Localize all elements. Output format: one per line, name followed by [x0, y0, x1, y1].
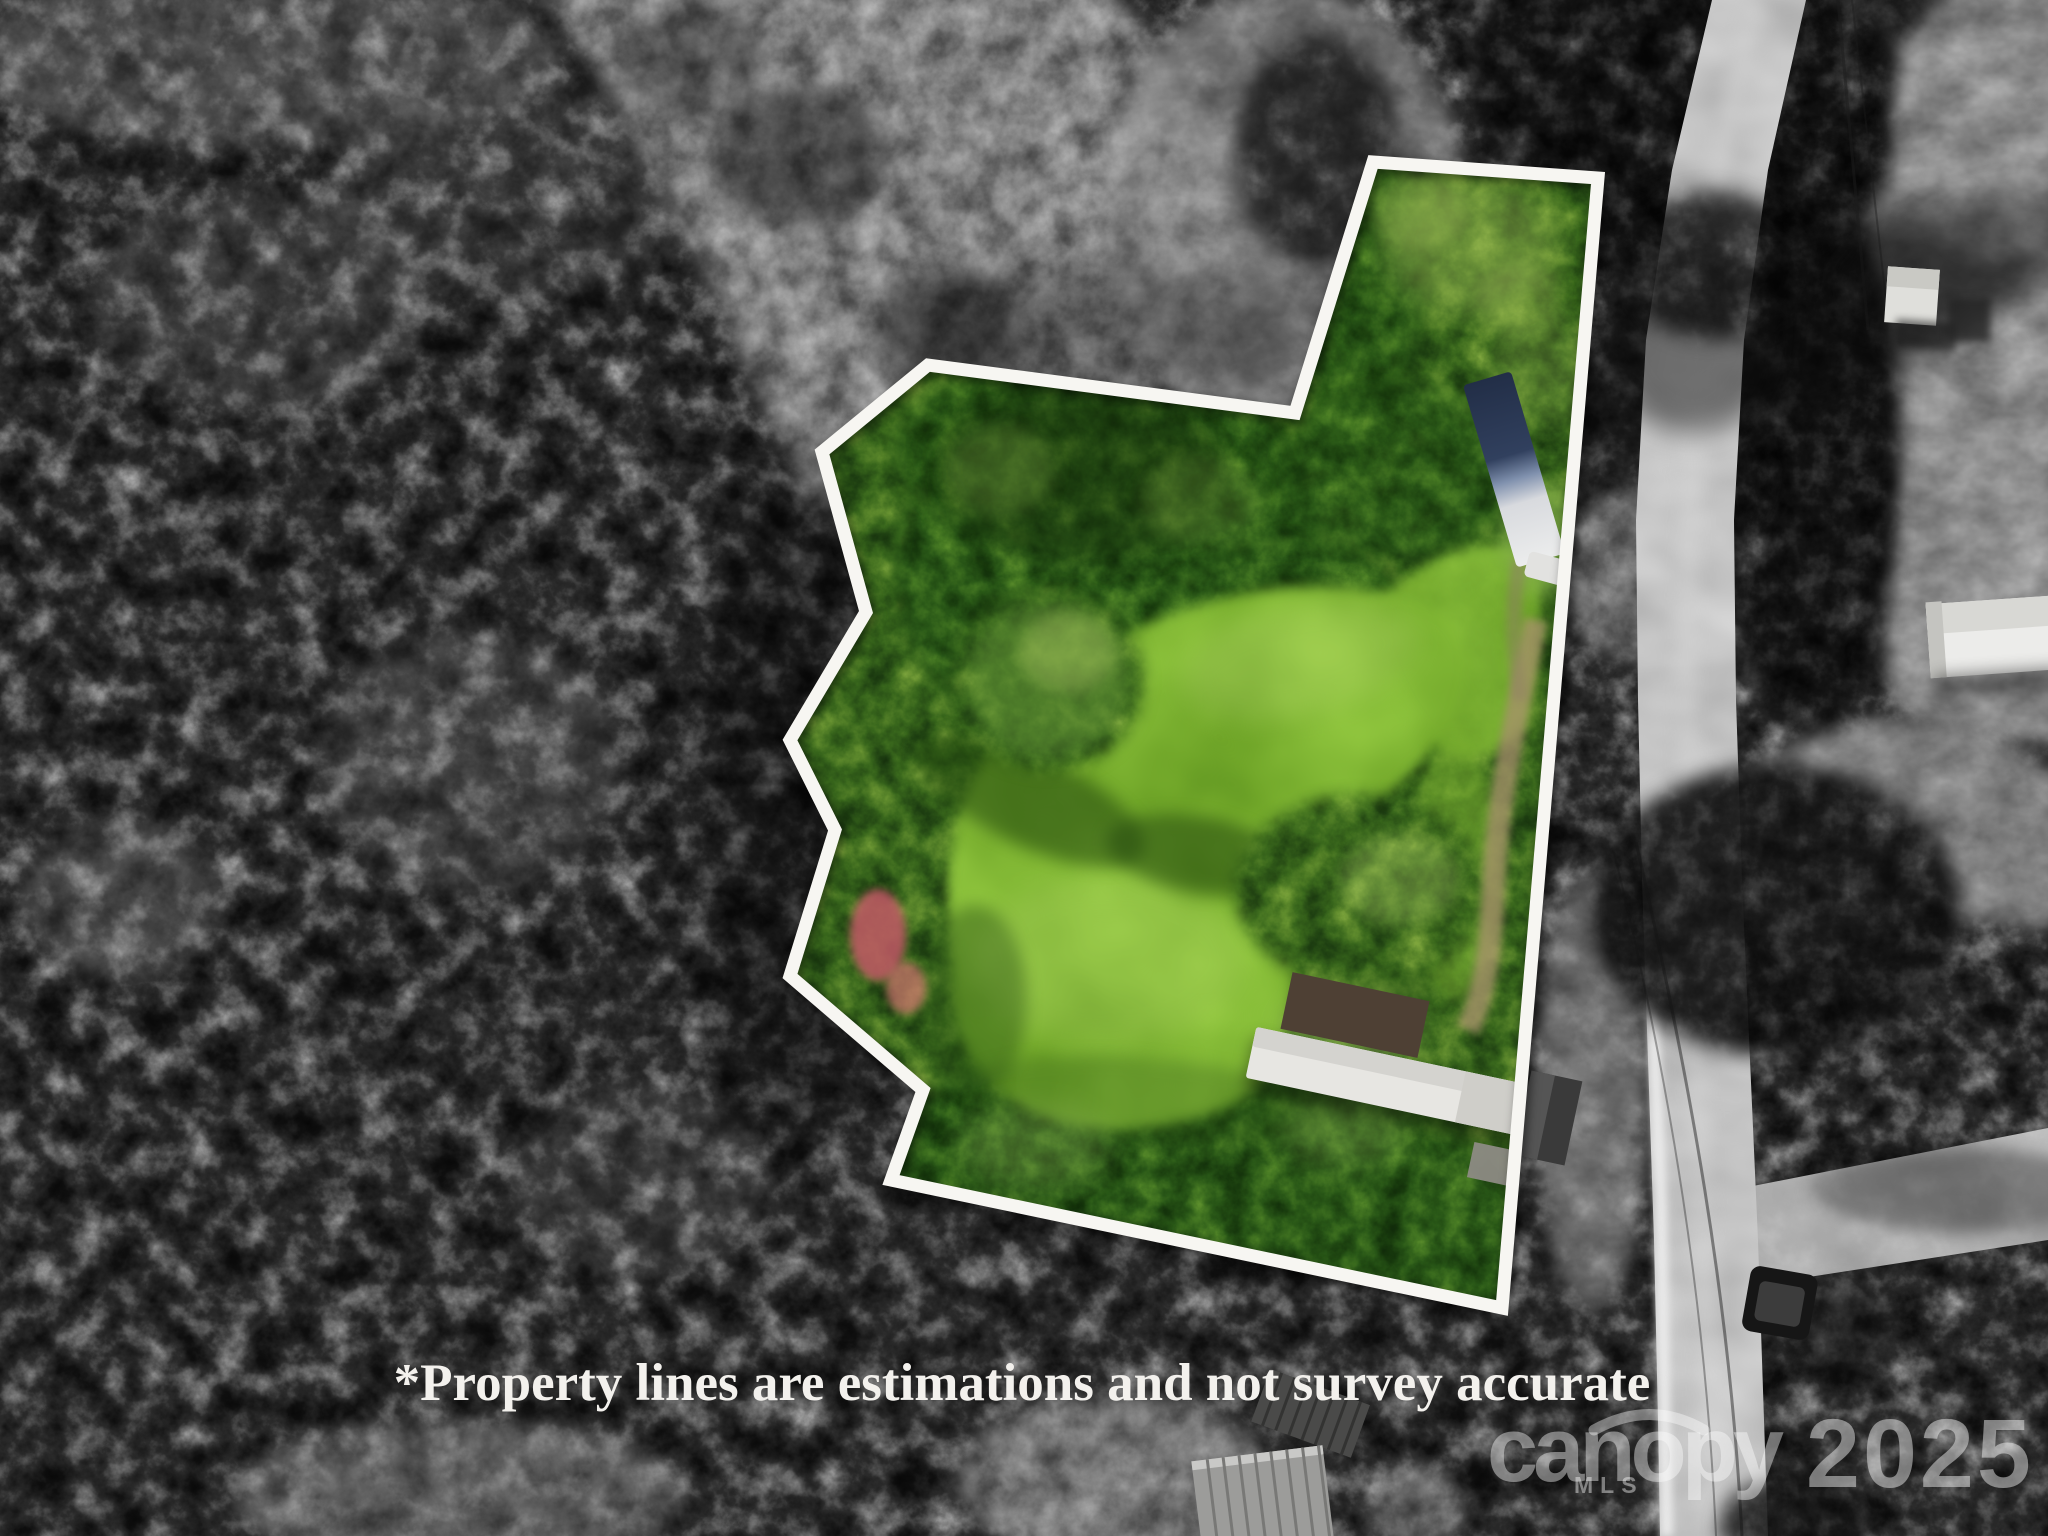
svg-text:2025: 2025	[1806, 1399, 2034, 1508]
svg-text:MLS: MLS	[1574, 1472, 1644, 1498]
svg-text:*Property lines are estimation: *Property lines are estimations and not …	[394, 1354, 1651, 1412]
